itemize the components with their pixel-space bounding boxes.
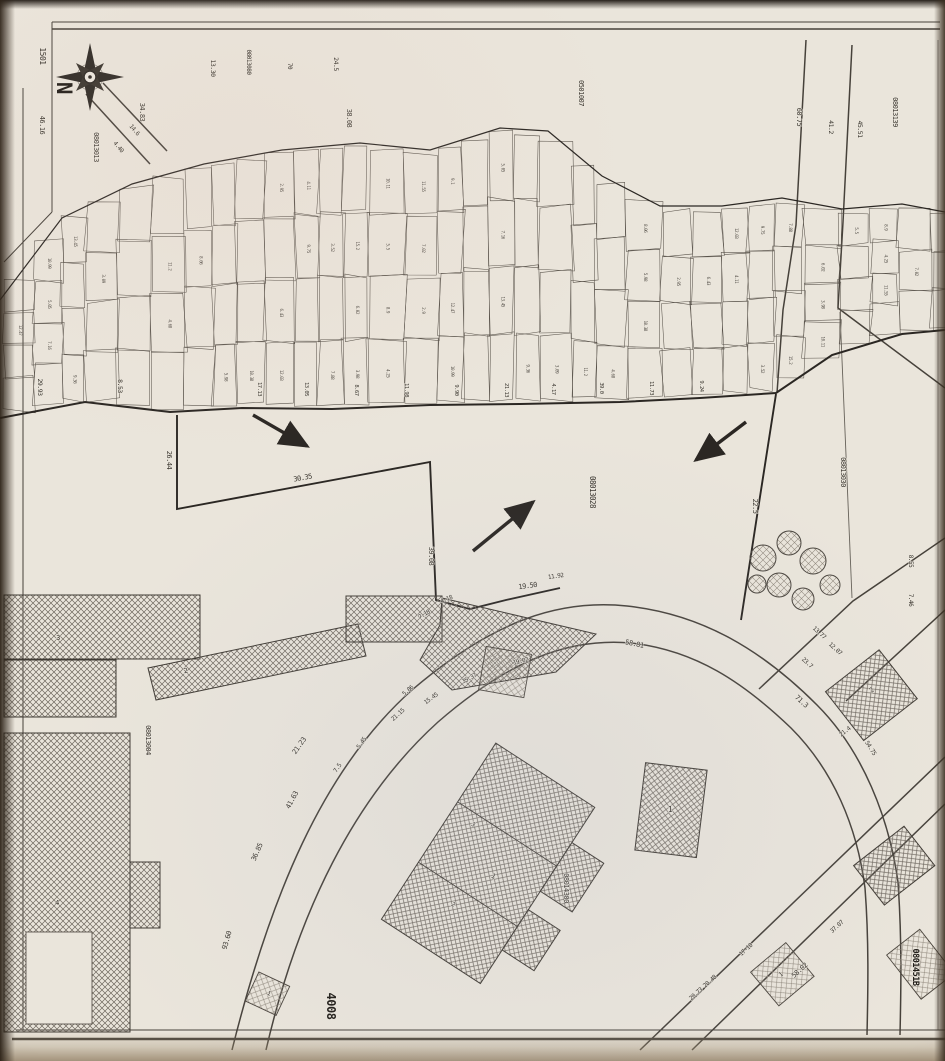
- parcel-cell: [211, 163, 235, 226]
- parcel-cell: [722, 345, 748, 394]
- measurement-label: 36.85: [250, 842, 265, 862]
- measurement-label: 54.75: [863, 740, 878, 758]
- measurement-label: 9.90: [453, 384, 459, 395]
- parcel-measure: 10.99: [46, 258, 52, 269]
- annotation-arrows: [253, 415, 746, 551]
- measurement-label: 19.50: [518, 581, 538, 592]
- parcel-cell: [3, 345, 34, 379]
- parcel-measure: 6.43: [705, 277, 711, 286]
- measurement-label: 30.35: [293, 472, 313, 483]
- measurement-label: 1: [668, 805, 673, 814]
- south-building-cluster: [381, 743, 626, 1004]
- parcel-measure: 12.47: [17, 325, 23, 336]
- measurement-label: 21.13: [503, 383, 509, 397]
- parcel-cell: [212, 224, 238, 285]
- parcel-cell: [595, 290, 629, 348]
- measurement-label: 37.07: [829, 918, 846, 934]
- parcel-measure: 9.36: [72, 375, 78, 384]
- parcel-measure: 13.45: [72, 236, 78, 247]
- parcel-measure: 11.55: [420, 181, 426, 192]
- parcel-id-center: 08013028: [588, 476, 597, 509]
- parcel-measure: 11.2: [166, 262, 172, 271]
- parcel-measure: 2.95: [278, 183, 284, 192]
- parcel-cell: [515, 198, 539, 267]
- parcel-cell: [4, 279, 34, 312]
- measurement-label: 3: [56, 634, 60, 642]
- measurement-label: 8.53: [116, 379, 124, 393]
- parcel-measure: 7.02: [420, 244, 426, 253]
- parcel-cell: [690, 302, 724, 349]
- measurement-label: 13.30: [209, 59, 217, 77]
- parcel-id-northwest: 08013013: [92, 132, 100, 162]
- measurement-label: 9.24: [698, 380, 704, 392]
- parcel-measure: 9.1: [449, 178, 455, 185]
- measurement-label: 11.98: [403, 383, 409, 397]
- parcel-measure: 11.2: [582, 367, 588, 376]
- parcel-cell: [461, 333, 490, 401]
- parcel-measure: 10.38: [642, 320, 648, 331]
- parcel-cell: [117, 295, 150, 350]
- measurement-label: 41.2: [827, 120, 835, 134]
- parcel-measure: 6.43: [278, 308, 284, 317]
- measurement-label: 45.51: [856, 120, 864, 138]
- scanned-map-photo: N 1501 08013013 08013080 0501007 0801313…: [0, 0, 945, 1061]
- parcel-measure: 8.06: [197, 256, 203, 265]
- parcel-cell: [802, 208, 842, 245]
- measurement-label: 13.05: [303, 382, 309, 396]
- parcel-measure: 3.09: [554, 365, 560, 374]
- parcel-id-southeast: 0801451B: [910, 949, 920, 986]
- parcel-cell: [747, 297, 776, 344]
- parcel-strip-borders: [0, 128, 945, 418]
- measurement-label: 8.67: [353, 384, 359, 395]
- parcel-cell: [461, 140, 488, 206]
- measurement-label: 17-10: [738, 941, 755, 957]
- measurement-label: 34.83: [138, 103, 146, 122]
- north-label: N: [52, 82, 76, 94]
- parcel-cell: [513, 135, 539, 202]
- parcel-strip: [2, 130, 945, 413]
- measurement-label: 39.08: [427, 547, 435, 566]
- parcel-measure: 9.75: [305, 244, 311, 253]
- parcel-cell: [597, 182, 626, 239]
- measurement-label: 22.5: [751, 499, 759, 514]
- parcel-measure: 7.88: [787, 223, 793, 232]
- parcel-cell: [537, 141, 574, 207]
- parcel-cell: [463, 206, 489, 271]
- parcel-cell: [869, 302, 900, 336]
- measurement-label: 8.55: [907, 555, 914, 568]
- parcel-cell: [83, 349, 119, 403]
- parcel-measure: 10.38: [248, 370, 254, 381]
- parcel-cell: [84, 202, 121, 253]
- parcel-measure: 9.36: [525, 364, 531, 373]
- parcel-cell: [151, 176, 184, 234]
- parcel-measure: 12.03: [278, 370, 284, 381]
- measurement-label: 11.92: [548, 572, 565, 581]
- measurement-label: 14.6: [127, 123, 141, 138]
- parcel-measure: 10.11: [385, 178, 391, 189]
- measurement-label: 4: [55, 899, 59, 907]
- parcel-cell: [838, 276, 873, 312]
- parcel-cell: [185, 168, 211, 229]
- parcel-cell: [264, 216, 296, 281]
- parcel-measure: 7.16: [500, 230, 506, 239]
- parcel-measure: 10.99: [449, 366, 455, 377]
- parcel-cell: [116, 239, 151, 296]
- parcel-id-north-center: 0501007: [577, 80, 585, 106]
- parcel-cell: [839, 310, 873, 344]
- measurement-label: 4.17: [550, 383, 556, 394]
- central-parcel-boundary: [177, 394, 776, 620]
- parcel-cell: [235, 220, 266, 284]
- parcel-cell: [234, 159, 267, 218]
- parcel-measure: 2.95: [675, 277, 681, 286]
- parcel-cell: [184, 286, 215, 350]
- parcel-cell: [514, 265, 540, 336]
- parcel-cell: [62, 308, 86, 356]
- arrow-southwest-icon: [696, 422, 746, 460]
- parcel-measure: 5.5: [853, 227, 859, 234]
- parcel-measure: 7.16: [46, 341, 52, 350]
- parcel-cell: [294, 342, 316, 406]
- parcel-measure: 9.75: [759, 226, 765, 235]
- parcel-cell: [488, 332, 515, 402]
- parcel-cell: [317, 275, 343, 342]
- parcel-measure: 11.55: [882, 285, 888, 296]
- parcel-id-west-block: 08013004: [144, 725, 152, 755]
- parcel-cell: [692, 347, 724, 394]
- parcel-measure: 6.02: [819, 263, 825, 272]
- parcel-cell: [899, 290, 934, 331]
- parcel-cell: [437, 209, 465, 273]
- parcel-measure: 7.02: [913, 267, 919, 276]
- parcel-measure: 8.06: [642, 224, 648, 233]
- parcel-cell: [571, 280, 597, 342]
- measurement-label: 20.73 20.48: [688, 973, 719, 1002]
- parcel-measure: 5.5: [385, 243, 391, 250]
- parcel-measure: 12.03: [733, 228, 739, 239]
- measurement-label: 4.40: [111, 140, 125, 155]
- parcel-cell: [295, 278, 319, 342]
- parcel-cell: [627, 348, 663, 398]
- tree-symbols: [748, 531, 840, 610]
- parcel-measure: 4.25: [882, 254, 888, 263]
- parcel-measure: 4.11: [305, 181, 311, 190]
- measurement-label: 58.81: [624, 638, 644, 650]
- measurement-label: 39.0: [598, 382, 604, 393]
- arrow-southeast-icon: [253, 415, 307, 446]
- parcel-id-north-strip: 08013080: [245, 50, 252, 76]
- parcel-cell: [341, 146, 366, 211]
- parcel-measure: 4.68: [166, 319, 172, 328]
- parcel-measure: 5.05: [46, 300, 52, 309]
- parcel-cell: [660, 348, 693, 397]
- parcel-cell: [663, 209, 692, 257]
- parcel-measure: 3.09: [100, 274, 106, 283]
- parcel-cell: [594, 237, 625, 291]
- compass-rose-icon: [56, 43, 124, 111]
- sheet-number: 1501: [38, 47, 47, 65]
- parcel-cell: [118, 185, 154, 242]
- parcel-cell: [236, 281, 267, 343]
- parcel-measure: 15.2: [354, 241, 360, 250]
- arrow-northeast-icon: [473, 502, 533, 551]
- parcel-cell: [116, 348, 150, 406]
- measurement-label: 29.93: [36, 378, 44, 396]
- measurement-label: 60.75: [795, 108, 803, 127]
- measurement-label: 93.60: [221, 930, 234, 950]
- measurement-label: 17.13: [256, 382, 262, 396]
- parcel-measure: 4.68: [609, 369, 615, 378]
- parcel-measure: 3.98: [819, 300, 825, 309]
- parcel-cell: [722, 301, 748, 347]
- parcel-measure: 2.9: [420, 307, 426, 314]
- measurement-label: 11.73: [648, 381, 654, 395]
- parcel-measure: 12.47: [449, 303, 455, 314]
- measurement-label: 7.46: [907, 594, 914, 607]
- parcel-cell: [540, 269, 571, 333]
- measurement-label: 46.16: [38, 116, 46, 135]
- parcel-cell: [183, 346, 215, 406]
- parcel-measure: 5.98: [223, 373, 229, 382]
- measurement-label: 15.45: [423, 691, 440, 706]
- parcel-cell: [317, 148, 343, 215]
- measurement-label: 41.63: [284, 790, 300, 810]
- measurement-label: 26.44: [165, 451, 173, 470]
- parcel-measure: 6.02: [354, 306, 360, 315]
- parcel-cell: [571, 165, 594, 226]
- parcel-measure: 3.98: [354, 370, 360, 379]
- measurement-label: 70: [286, 63, 293, 70]
- parcel-cell: [773, 291, 805, 337]
- parcel-measure: 8.9: [882, 224, 888, 231]
- parcel-cell: [746, 250, 776, 300]
- parcel-id-northeast: 08013139: [891, 97, 899, 127]
- parcel-cell: [538, 204, 574, 271]
- parcel-id-east: 08013030: [839, 457, 847, 487]
- measurement-label: 21.23: [291, 736, 308, 756]
- parcel-measure: 10.11: [819, 336, 825, 347]
- parcel-cell: [934, 250, 945, 291]
- parcel-measure: 13.45: [500, 296, 506, 307]
- parcel-measure: 15.2: [787, 356, 793, 365]
- parcel-cell: [661, 301, 692, 349]
- parcel-cell: [929, 288, 945, 328]
- parcel-cell: [693, 212, 725, 257]
- measurement-label: 38.08: [345, 109, 353, 128]
- measurement-label: 21.4: [838, 725, 853, 739]
- parcel-measure: 5.05: [500, 163, 506, 172]
- parcel-cell: [464, 268, 490, 336]
- parcel-cell: [3, 375, 35, 413]
- parcel-measure: 5.98: [642, 273, 648, 282]
- parcel-measure: 3.52: [759, 365, 765, 374]
- parcel-cell: [86, 299, 119, 353]
- parcel-measure: 4.11: [733, 275, 739, 284]
- measurement-label: 5.86: [401, 684, 416, 698]
- measurement-label: 24.5: [332, 57, 340, 71]
- parcel-cell: [151, 352, 184, 410]
- road-number: 4008: [324, 993, 338, 1020]
- parcel-measure: 3.52: [329, 243, 335, 252]
- parcel-measure: 4.25: [385, 369, 391, 378]
- measurement-label: 23.7: [800, 656, 815, 670]
- parcel-id-south-block: 08014300: [562, 873, 570, 903]
- parcel-cell: [896, 208, 930, 251]
- measurement-label: 12.07: [827, 641, 844, 657]
- cadastral-map: N 1501 08013013 08013080 0501007 0801313…: [0, 0, 945, 1061]
- parcel-measure: 8.9: [385, 307, 391, 314]
- parcel-measure: 7.88: [329, 371, 335, 380]
